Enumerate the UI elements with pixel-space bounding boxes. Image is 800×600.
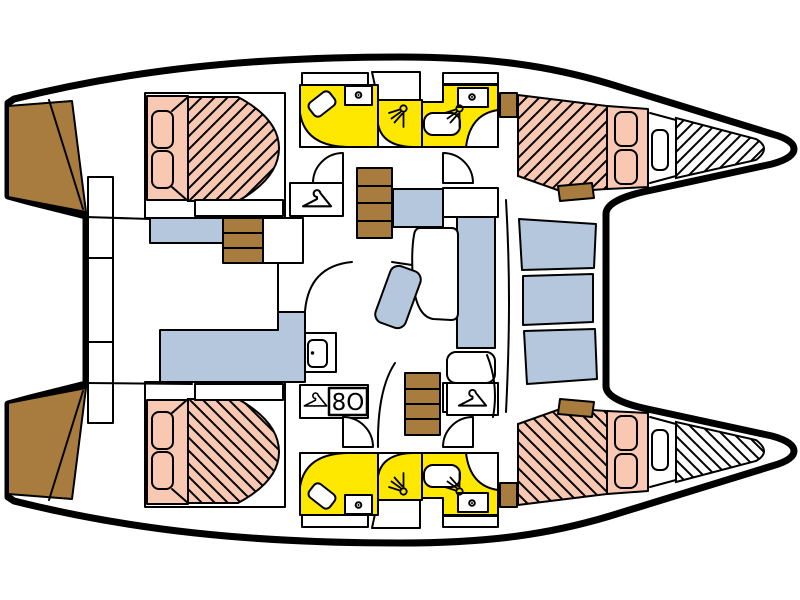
saloon-settee-side: [457, 217, 495, 348]
aft-transom-bench: [88, 177, 113, 423]
cockpit-cushion: [519, 219, 596, 270]
cabin-bench: [150, 218, 223, 243]
cockpit-cushion: [523, 274, 593, 325]
fridge-handle: [311, 351, 314, 354]
storage-box: [263, 218, 303, 263]
transom-bench: [88, 177, 113, 423]
floorplan-canvas: 8O: [0, 0, 800, 600]
saloon-settee-fwd: [393, 189, 443, 227]
catamaran-floorplan: 8O: [0, 0, 800, 600]
cockpit-cushion: [524, 329, 597, 384]
forward-cockpit: [519, 219, 597, 384]
cabin-steps: [223, 218, 263, 263]
appliance-label: 8O: [332, 390, 365, 416]
inner-wall: [86, 383, 192, 384]
